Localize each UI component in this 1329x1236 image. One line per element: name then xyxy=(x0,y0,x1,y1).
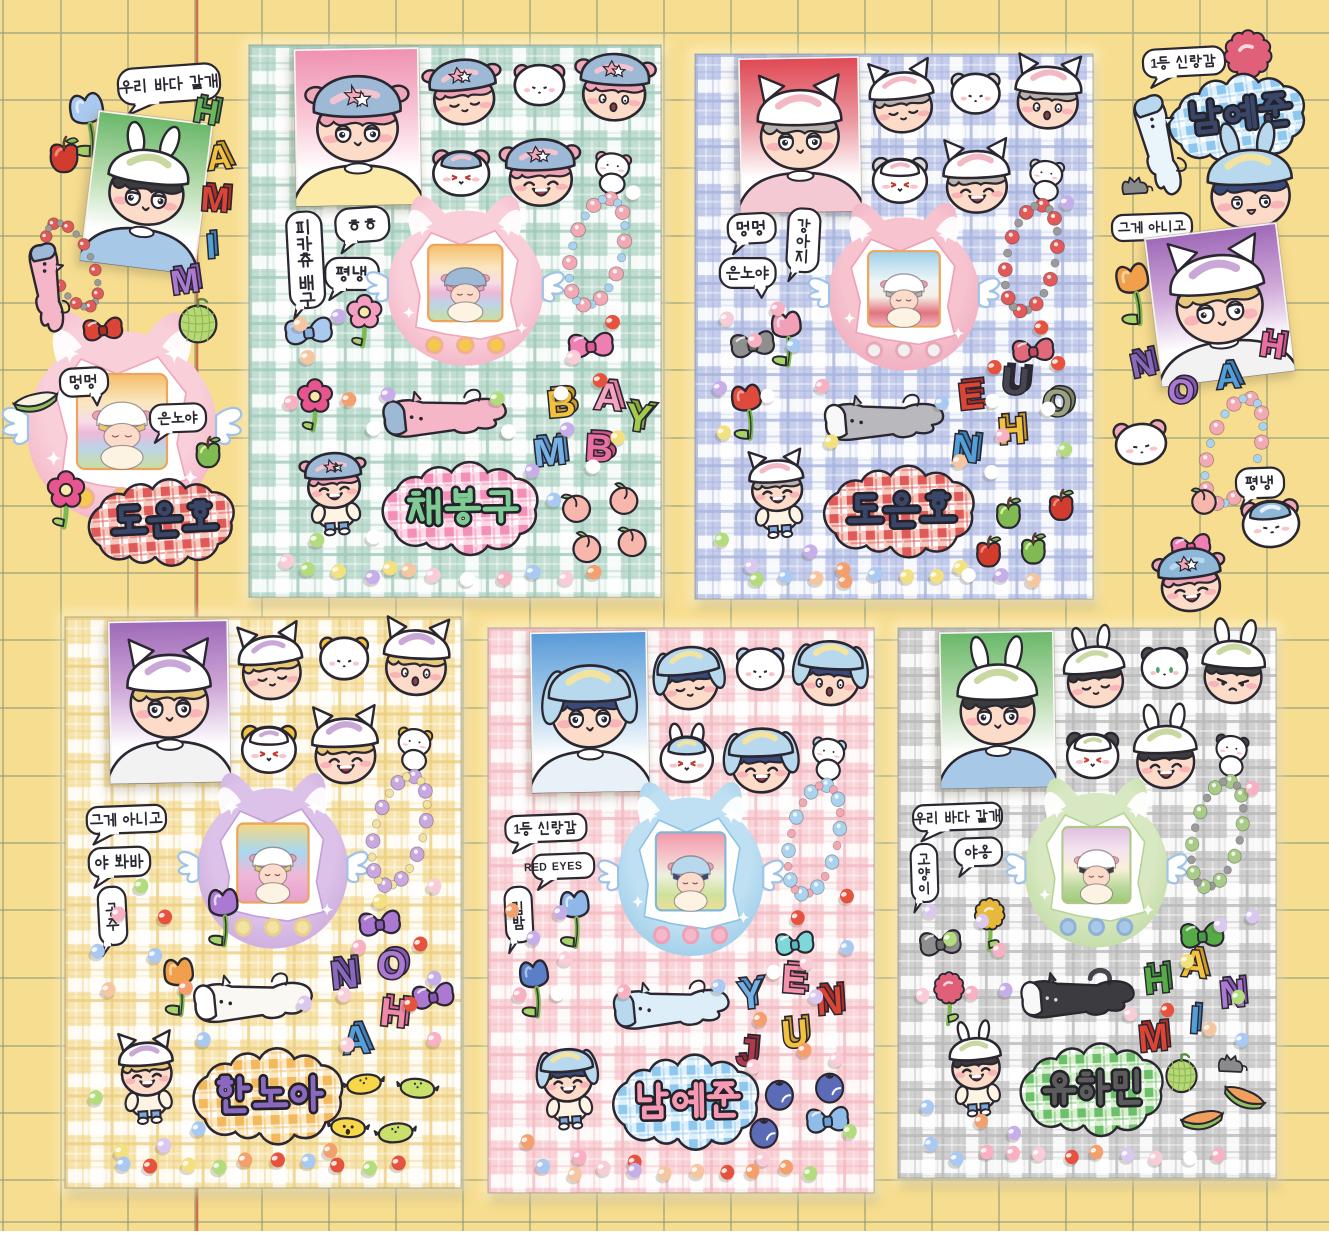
svg-text:U: U xyxy=(1000,359,1031,403)
svg-text:A: A xyxy=(205,138,233,178)
svg-text:A: A xyxy=(1214,357,1242,397)
svg-text:E: E xyxy=(532,861,539,874)
svg-text:H: H xyxy=(378,990,409,1037)
svg-text:H: H xyxy=(1142,958,1172,1003)
svg-text:O: O xyxy=(375,943,408,990)
svg-text:D: D xyxy=(539,861,547,874)
svg-text:E: E xyxy=(552,861,559,874)
svg-text:M: M xyxy=(1137,1016,1170,1061)
svg-text:H: H xyxy=(1257,325,1287,366)
svg-text:Y: Y xyxy=(736,973,765,1019)
svg-text:E: E xyxy=(956,374,985,418)
svg-text:S: S xyxy=(575,860,582,873)
svg-text:M: M xyxy=(168,261,201,303)
svg-text:O: O xyxy=(1166,372,1196,413)
svg-text:M: M xyxy=(200,180,231,220)
svg-text:E: E xyxy=(567,860,574,873)
svg-text:R: R xyxy=(524,862,532,875)
